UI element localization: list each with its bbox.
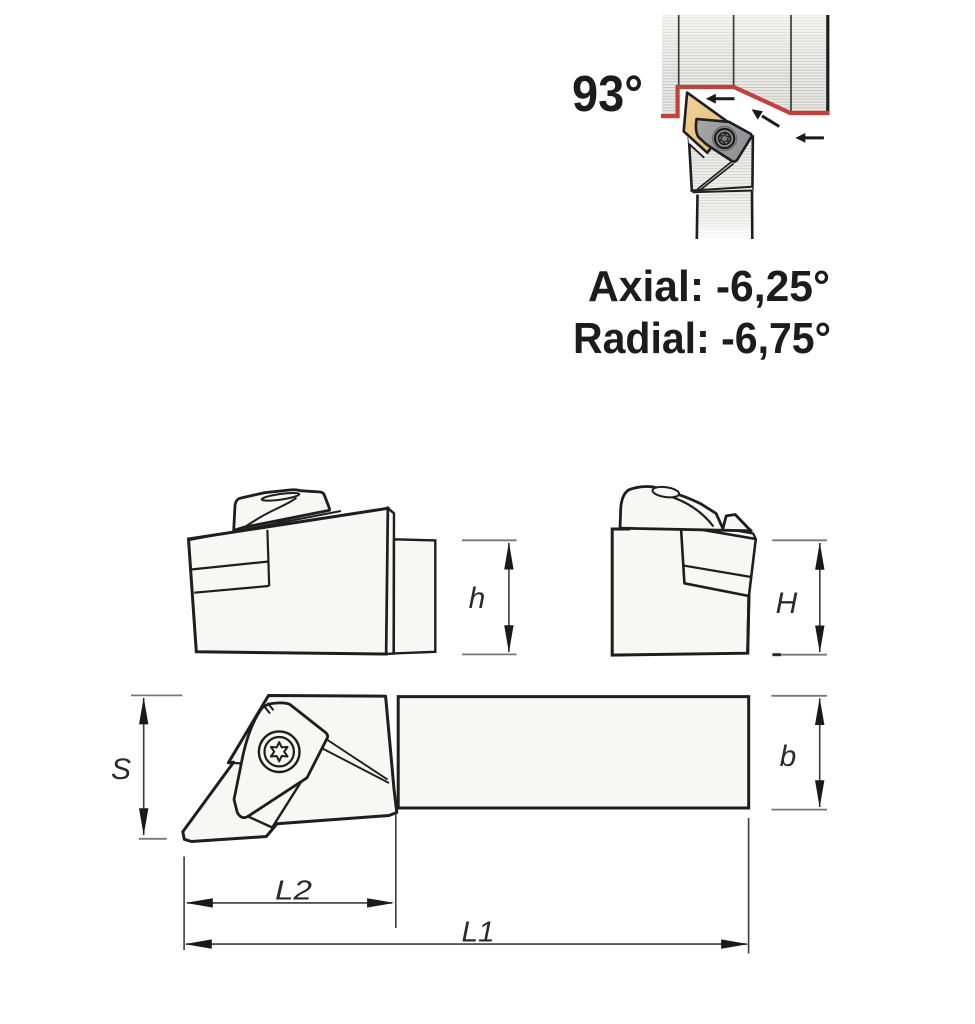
svg-text:S: S xyxy=(111,753,131,786)
svg-text:Radial: -6,75°: Radial: -6,75° xyxy=(573,314,831,363)
svg-text:b: b xyxy=(780,740,797,773)
svg-text:L2: L2 xyxy=(275,875,312,906)
svg-text:93°: 93° xyxy=(572,65,643,122)
svg-text:L1: L1 xyxy=(462,917,495,949)
svg-text:h: h xyxy=(469,582,486,615)
svg-text:Axial: -6,25°: Axial: -6,25° xyxy=(588,262,830,311)
svg-text:H: H xyxy=(776,587,798,620)
